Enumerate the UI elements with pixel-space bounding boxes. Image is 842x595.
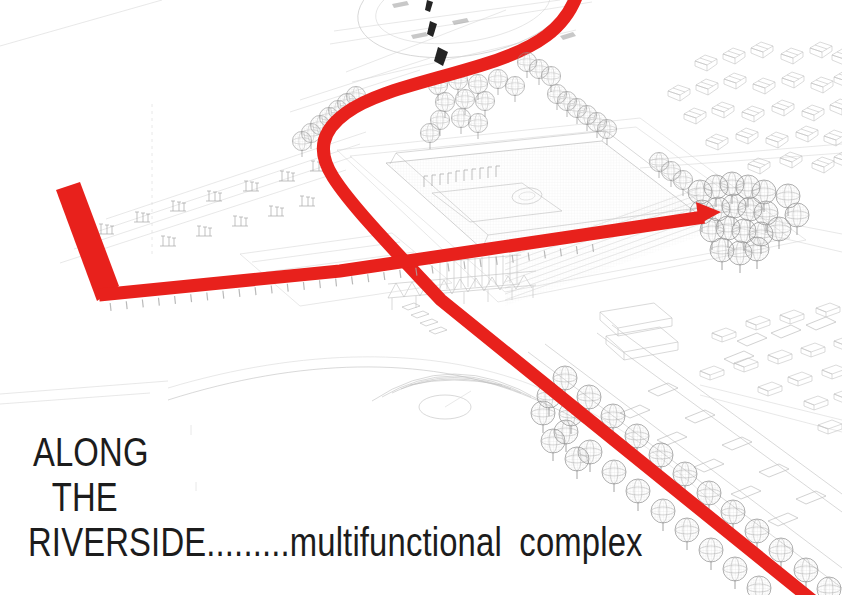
terrace-step xyxy=(429,327,447,334)
mooring-dock xyxy=(243,181,259,191)
mooring-dock xyxy=(232,216,248,226)
house xyxy=(780,152,802,168)
tree xyxy=(817,577,841,595)
bank-lines xyxy=(0,381,168,404)
house xyxy=(712,328,736,342)
mooring-dock xyxy=(268,206,284,216)
house xyxy=(772,100,794,116)
tree xyxy=(420,123,439,149)
bench xyxy=(411,32,428,39)
tree xyxy=(468,113,487,139)
east-road-lines xyxy=(700,385,842,432)
site-marker xyxy=(427,21,437,37)
site-marker xyxy=(434,47,448,66)
mooring-dock xyxy=(170,201,186,211)
housing-top-right xyxy=(668,42,842,174)
house xyxy=(696,79,718,95)
house xyxy=(810,42,832,58)
house xyxy=(832,49,842,65)
house xyxy=(724,73,746,89)
house xyxy=(796,126,818,142)
house xyxy=(766,132,788,148)
house xyxy=(668,85,690,101)
amphitheater xyxy=(372,374,541,419)
tree xyxy=(745,237,769,269)
tree xyxy=(747,576,771,595)
house xyxy=(695,55,717,71)
pavement-marking xyxy=(771,325,801,338)
caption-line-2: THE xyxy=(28,475,643,520)
house xyxy=(830,99,842,115)
house xyxy=(712,102,734,118)
house xyxy=(782,72,804,88)
house xyxy=(788,372,812,386)
house xyxy=(768,350,792,364)
house xyxy=(816,303,840,317)
mooring-dock xyxy=(134,212,150,222)
mooring-dock xyxy=(98,224,114,234)
pavement-marking xyxy=(768,513,798,526)
mooring-dock xyxy=(299,196,315,206)
pavement-marking xyxy=(724,351,754,364)
terrace-arc xyxy=(401,379,511,389)
pavement-marking xyxy=(685,410,715,423)
house xyxy=(684,108,706,124)
tree xyxy=(505,76,524,102)
tree xyxy=(723,557,747,589)
pavement-marking xyxy=(648,383,678,396)
mooring-dock xyxy=(279,171,295,181)
house xyxy=(758,382,782,396)
tree xyxy=(488,69,507,95)
caption-line-1: ALONG xyxy=(28,430,643,475)
house xyxy=(706,134,728,150)
house xyxy=(818,420,842,434)
stage-radius-line xyxy=(445,391,471,407)
house xyxy=(824,130,842,146)
riverside-concept-diagram: ALONG THE RIVERSIDE.........multifunctio… xyxy=(0,0,842,595)
house xyxy=(834,71,842,87)
site-marker xyxy=(425,0,433,12)
terrace-step xyxy=(411,311,429,318)
bench xyxy=(392,1,409,8)
house xyxy=(753,78,775,94)
tree xyxy=(699,538,723,570)
house xyxy=(746,316,770,330)
house xyxy=(734,358,758,372)
house xyxy=(748,158,770,174)
caption-line-3: RIVERSIDE.........multifunctional comple… xyxy=(28,520,643,565)
mooring-dock xyxy=(196,226,212,236)
terrace-step xyxy=(420,319,438,326)
house xyxy=(700,366,724,380)
pavement-marking xyxy=(806,317,836,330)
pavement-marking xyxy=(759,464,789,477)
pavement-markings xyxy=(620,317,836,526)
housing-mid-right xyxy=(600,303,842,396)
tree xyxy=(451,108,470,134)
house xyxy=(804,396,828,410)
house xyxy=(802,105,824,121)
house xyxy=(812,157,834,173)
house xyxy=(781,48,803,64)
pavement-marking xyxy=(722,437,752,450)
caption: ALONG THE RIVERSIDE.........multifunctio… xyxy=(28,430,643,565)
house xyxy=(801,343,825,357)
house xyxy=(723,48,745,64)
house xyxy=(780,310,804,324)
pavement-marking xyxy=(737,333,767,346)
bench xyxy=(452,18,469,25)
pavement-marking xyxy=(796,491,826,504)
house xyxy=(751,42,773,58)
tree xyxy=(675,518,699,550)
warehouse xyxy=(606,327,678,360)
terrace-arc xyxy=(372,374,541,401)
red-pier-band xyxy=(56,182,119,301)
house xyxy=(834,389,842,403)
housing-bottom-right xyxy=(788,365,842,434)
house xyxy=(811,77,833,93)
house xyxy=(834,336,842,350)
house xyxy=(742,106,764,122)
terrace-step xyxy=(402,303,420,310)
pavement-marking xyxy=(694,459,724,472)
tree xyxy=(651,499,675,531)
mooring-dock xyxy=(160,236,176,246)
tree xyxy=(767,217,791,249)
boundary-line xyxy=(0,0,162,46)
house xyxy=(822,365,842,379)
house xyxy=(736,128,758,144)
